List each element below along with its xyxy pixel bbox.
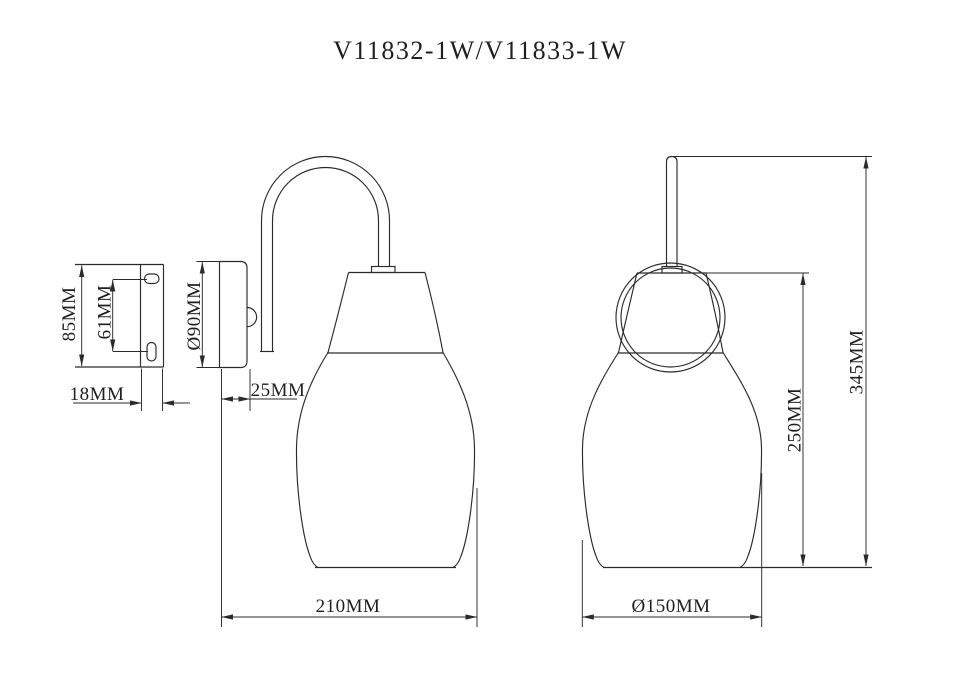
dimension-345mm-label: 345MM (847, 330, 868, 395)
lamp-side-view: Ø90MM 25MM 210MM (184, 157, 477, 628)
dimension-25mm-label: 25MM (251, 380, 306, 401)
shade-shoulder-left-side (328, 273, 349, 353)
arm-pivot-knuckle (247, 308, 257, 327)
shade-ferrule-side (372, 267, 396, 273)
backplate-outer-circle-front (616, 263, 725, 372)
dimension-150mm-label: Ø150MM (631, 596, 710, 617)
dimension-18mm-label: 18MM (70, 384, 125, 405)
shade-shoulder-right-side (425, 273, 443, 353)
shade-body-left-front (582, 353, 618, 568)
dimension-250mm-label: 250MM (785, 388, 806, 453)
arm-stem-front (667, 157, 678, 267)
top-keyhole-slot (145, 274, 160, 284)
gooseneck-arm-inner (273, 168, 379, 352)
technical-drawing-page: V11832-1W/V11833-1W 85MM 61MM 18MM (0, 0, 960, 678)
dimension-61mm-label: 61MM (95, 285, 116, 340)
backplate-inner-circle-front (621, 268, 720, 367)
backplate-outline (220, 262, 248, 368)
dimension-90mm-label: Ø90MM (184, 281, 205, 350)
gooseneck-arm-outer (262, 157, 390, 352)
bottom-keyhole-slot (147, 343, 156, 362)
dimension-drawing: V11832-1W/V11833-1W 85MM 61MM 18MM (0, 0, 960, 678)
dimension-210mm-label: 210MM (316, 596, 381, 617)
drawing-title: V11832-1W/V11833-1W (333, 36, 627, 65)
shade-body-right-side (443, 353, 475, 568)
bracket-side-view: 85MM 61MM 18MM (59, 265, 190, 412)
dimension-85mm-label: 85MM (59, 287, 80, 342)
lamp-front-view: 250MM 345MM Ø150MM (582, 157, 872, 628)
shade-body-right-front (723, 353, 762, 568)
